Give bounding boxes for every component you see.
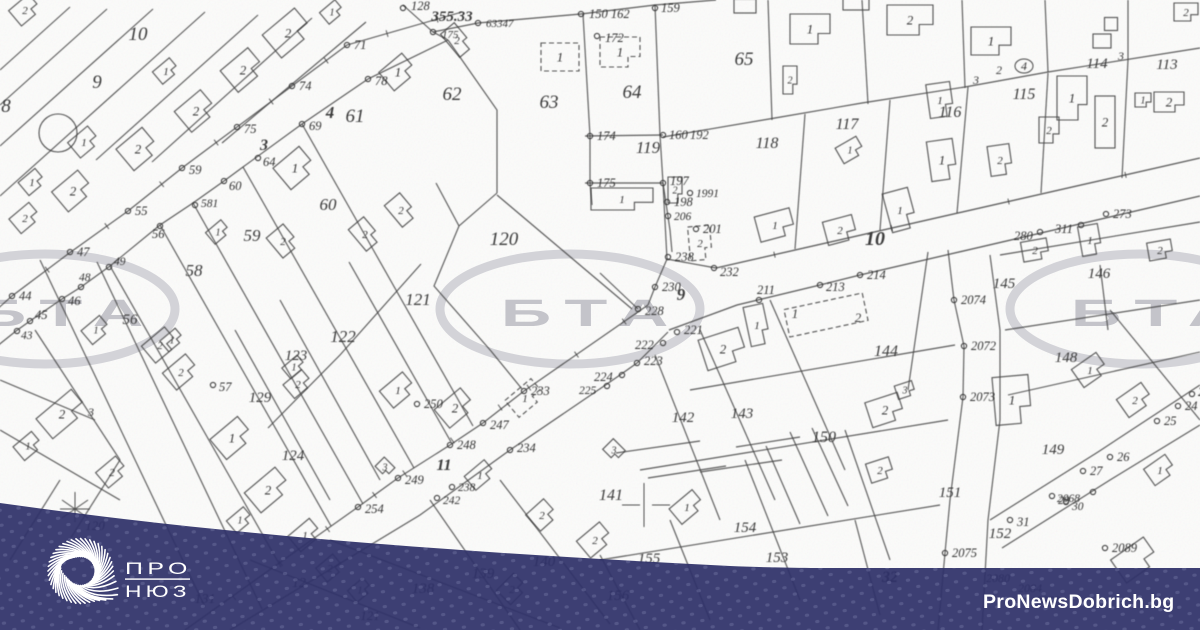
svg-text:234: 234	[517, 441, 536, 455]
svg-text:2: 2	[788, 76, 793, 87]
svg-text:250: 250	[424, 397, 444, 411]
svg-text:1: 1	[754, 320, 760, 332]
svg-text:192: 192	[690, 128, 709, 142]
svg-text:145: 145	[993, 276, 1016, 292]
svg-text:2: 2	[882, 403, 889, 418]
svg-text:1: 1	[619, 194, 625, 206]
svg-text:2: 2	[1102, 115, 1109, 130]
svg-text:2: 2	[193, 104, 200, 119]
svg-text:ProNewsDobrich.bg: ProNewsDobrich.bg	[983, 591, 1174, 613]
svg-text:1: 1	[807, 22, 814, 37]
svg-text:1: 1	[939, 153, 946, 168]
svg-text:1: 1	[1141, 96, 1146, 107]
svg-text:58: 58	[186, 261, 204, 280]
svg-text:2073: 2073	[970, 390, 995, 404]
svg-text:64: 64	[263, 155, 276, 169]
svg-text:159: 159	[661, 1, 681, 15]
svg-text:9: 9	[92, 72, 102, 93]
svg-text:142: 142	[672, 410, 695, 426]
svg-text:233: 233	[531, 384, 550, 398]
svg-text:64: 64	[623, 82, 643, 103]
svg-text:60: 60	[229, 179, 242, 193]
svg-text:45: 45	[35, 308, 48, 322]
svg-text:1: 1	[395, 385, 401, 397]
svg-text:150: 150	[812, 429, 836, 446]
svg-text:25: 25	[1164, 414, 1177, 428]
svg-text:1: 1	[163, 66, 169, 78]
svg-text:3: 3	[902, 386, 908, 397]
svg-text:55: 55	[135, 204, 148, 218]
svg-text:2: 2	[1166, 95, 1173, 110]
svg-text:2: 2	[996, 63, 1002, 77]
svg-text:1: 1	[94, 326, 99, 337]
svg-text:1: 1	[26, 442, 31, 453]
svg-text:1: 1	[477, 470, 483, 482]
svg-text:44: 44	[19, 289, 32, 303]
svg-text:1: 1	[1087, 235, 1093, 247]
svg-text:65: 65	[735, 49, 754, 70]
svg-text:154: 154	[734, 520, 757, 536]
svg-text:2089: 2089	[1112, 541, 1138, 555]
svg-text:116: 116	[939, 104, 962, 121]
svg-text:222: 222	[635, 338, 654, 352]
svg-text:249: 249	[405, 473, 425, 487]
svg-text:1: 1	[617, 45, 624, 60]
svg-text:1: 1	[229, 431, 236, 446]
svg-text:1: 1	[1069, 91, 1076, 106]
svg-text:214: 214	[867, 268, 886, 282]
svg-text:2: 2	[70, 184, 77, 199]
svg-text:2: 2	[157, 340, 163, 352]
svg-text:1: 1	[1009, 393, 1016, 408]
svg-text:61: 61	[346, 106, 365, 127]
svg-text:2: 2	[452, 401, 459, 416]
svg-text:1: 1	[29, 177, 35, 189]
svg-text:2: 2	[178, 367, 184, 379]
svg-text:2: 2	[720, 342, 727, 357]
svg-text:232: 232	[720, 265, 739, 279]
svg-text:2: 2	[997, 155, 1003, 167]
svg-text:4: 4	[325, 103, 335, 122]
svg-text:1: 1	[522, 393, 528, 405]
svg-text:211: 211	[757, 283, 775, 297]
svg-text:355.33: 355.33	[430, 9, 473, 25]
svg-text:119: 119	[636, 138, 661, 157]
svg-text:150 162: 150 162	[589, 7, 630, 21]
svg-text:2: 2	[1157, 245, 1163, 257]
svg-text:1: 1	[684, 502, 690, 514]
svg-text:1: 1	[792, 306, 799, 321]
svg-text:122: 122	[330, 327, 356, 346]
svg-text:247: 247	[490, 418, 510, 432]
svg-text:2: 2	[265, 483, 272, 498]
svg-text:1: 1	[557, 50, 564, 65]
svg-text:1: 1	[1087, 365, 1093, 377]
svg-text:46: 46	[68, 294, 81, 308]
svg-text:1: 1	[772, 220, 778, 232]
svg-text:2074: 2074	[961, 293, 986, 307]
svg-text:4: 4	[1021, 59, 1027, 73]
svg-text:2: 2	[285, 26, 292, 41]
svg-text:2: 2	[697, 238, 703, 250]
svg-text:3: 3	[611, 446, 617, 457]
svg-text:2: 2	[592, 535, 598, 547]
svg-text:198: 198	[674, 195, 694, 209]
svg-text:48: 48	[79, 272, 91, 284]
svg-text:9: 9	[677, 285, 686, 304]
svg-text:30: 30	[1071, 501, 1084, 513]
svg-text:228: 228	[645, 304, 665, 318]
svg-text:129: 129	[249, 390, 272, 406]
svg-text:2: 2	[907, 13, 914, 28]
svg-text:2: 2	[109, 467, 115, 479]
svg-text:2: 2	[295, 379, 301, 391]
svg-text:1: 1	[216, 228, 221, 239]
svg-text:2072: 2072	[971, 339, 996, 353]
svg-text:56: 56	[123, 312, 139, 328]
svg-text:175: 175	[442, 29, 459, 41]
svg-text:2: 2	[539, 510, 545, 522]
svg-text:75: 75	[244, 122, 257, 136]
svg-text:280: 280	[1014, 229, 1034, 243]
svg-text:242: 242	[443, 495, 461, 507]
svg-text:2: 2	[22, 213, 28, 225]
svg-text:2: 2	[59, 407, 66, 422]
svg-text:254: 254	[365, 502, 384, 516]
svg-text:2: 2	[362, 229, 368, 241]
svg-text:60: 60	[320, 195, 338, 214]
svg-text:1: 1	[848, 146, 853, 157]
svg-text:49: 49	[114, 256, 126, 268]
svg-text:26: 26	[1117, 450, 1130, 464]
svg-text:148: 148	[1055, 350, 1078, 366]
svg-text:143: 143	[731, 406, 754, 422]
svg-text:152: 152	[989, 526, 1012, 542]
svg-text:1: 1	[897, 205, 903, 217]
svg-text:146: 146	[1088, 266, 1111, 282]
svg-text:2: 2	[1046, 125, 1052, 137]
svg-text:БТА: БТА	[1071, 292, 1200, 334]
svg-text:120: 120	[490, 229, 519, 250]
svg-text:2: 2	[1132, 395, 1138, 407]
svg-text:74: 74	[299, 79, 312, 93]
svg-text:59: 59	[189, 163, 202, 177]
svg-text:31: 31	[1016, 515, 1030, 529]
svg-text:206: 206	[674, 211, 692, 223]
svg-text:151: 151	[939, 485, 962, 501]
svg-text:47: 47	[77, 245, 90, 259]
svg-text:69: 69	[309, 119, 322, 133]
svg-text:3: 3	[1117, 49, 1124, 63]
svg-text:172: 172	[605, 31, 624, 45]
svg-text:1991: 1991	[696, 188, 719, 200]
svg-text:115: 115	[1013, 86, 1036, 103]
svg-text:225: 225	[579, 385, 597, 397]
svg-text:160: 160	[669, 128, 689, 142]
svg-text:201: 201	[703, 222, 722, 236]
svg-text:238: 238	[458, 482, 476, 494]
svg-text:43: 43	[21, 330, 33, 342]
svg-text:3: 3	[259, 137, 268, 154]
svg-text:8: 8	[1, 96, 11, 117]
svg-text:57: 57	[219, 380, 232, 394]
svg-text:27: 27	[1090, 464, 1103, 478]
svg-text:НЮЗ: НЮЗ	[125, 583, 191, 601]
svg-text:11: 11	[436, 457, 451, 474]
svg-text:2: 2	[22, 5, 28, 17]
svg-text:1: 1	[988, 34, 995, 49]
svg-text:2: 2	[837, 225, 843, 237]
svg-text:1: 1	[238, 516, 243, 527]
svg-text:149: 149	[1042, 442, 1065, 458]
svg-text:118: 118	[756, 135, 779, 152]
svg-text:311: 311	[1054, 222, 1073, 236]
svg-text:128: 128	[411, 0, 431, 13]
svg-text:3: 3	[87, 405, 94, 419]
svg-text:ПРО: ПРО	[125, 560, 192, 578]
svg-text:2: 2	[240, 63, 247, 78]
svg-text:71: 71	[354, 38, 367, 52]
svg-text:63: 63	[540, 92, 559, 113]
svg-text:2075: 2075	[952, 546, 977, 560]
svg-text:1: 1	[81, 137, 87, 149]
svg-text:581: 581	[201, 198, 218, 210]
svg-text:62: 62	[443, 84, 463, 105]
svg-text:248: 248	[457, 438, 477, 452]
svg-text:56: 56	[152, 227, 165, 241]
svg-text:221: 221	[684, 323, 703, 337]
svg-text:223: 223	[644, 354, 663, 368]
svg-text:59: 59	[244, 226, 262, 245]
svg-text:213: 213	[826, 280, 845, 294]
svg-text:2: 2	[1183, 7, 1189, 19]
svg-text:238: 238	[675, 250, 695, 264]
svg-text:174: 174	[597, 129, 616, 143]
svg-text:273: 273	[1113, 207, 1132, 221]
svg-text:2: 2	[135, 142, 142, 157]
svg-text:2: 2	[1032, 245, 1038, 257]
svg-text:224: 224	[594, 370, 613, 384]
svg-text:1: 1	[330, 8, 335, 19]
svg-text:121: 121	[405, 290, 431, 309]
svg-text:144: 144	[874, 343, 898, 360]
svg-text:3: 3	[382, 463, 388, 474]
svg-text:197: 197	[670, 174, 690, 188]
svg-text:113: 113	[1156, 57, 1177, 73]
svg-text:2: 2	[877, 465, 883, 477]
svg-text:123: 123	[285, 348, 308, 364]
svg-text:2: 2	[280, 236, 286, 248]
svg-text:78: 78	[375, 74, 388, 88]
svg-text:10: 10	[129, 24, 149, 45]
svg-text:114: 114	[1086, 56, 1108, 72]
svg-text:10: 10	[865, 228, 885, 250]
svg-text:124: 124	[282, 448, 305, 464]
svg-text:1: 1	[395, 65, 402, 80]
svg-text:175: 175	[597, 176, 616, 190]
svg-text:3: 3	[972, 73, 979, 87]
svg-text:153: 153	[766, 550, 789, 566]
svg-text:2: 2	[855, 310, 862, 325]
svg-text:2: 2	[398, 205, 404, 217]
svg-text:24: 24	[1185, 399, 1198, 413]
svg-text:1: 1	[1157, 465, 1163, 477]
svg-text:63347: 63347	[486, 18, 514, 30]
svg-text:117: 117	[836, 116, 860, 133]
svg-text:141: 141	[599, 487, 623, 504]
svg-text:1: 1	[292, 363, 297, 374]
svg-text:1: 1	[292, 161, 299, 176]
